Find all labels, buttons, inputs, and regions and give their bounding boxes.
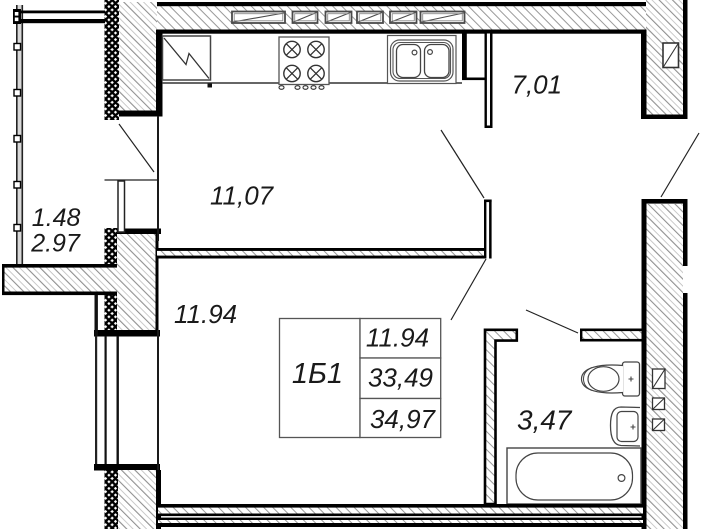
svg-text:3,47: 3,47 (517, 405, 573, 436)
svg-text:11.94: 11.94 (366, 323, 429, 353)
svg-text:7,01: 7,01 (512, 70, 563, 100)
svg-text:2.97: 2.97 (30, 230, 81, 258)
svg-text:11,07: 11,07 (210, 181, 275, 211)
svg-text:33,49: 33,49 (368, 363, 433, 393)
svg-text:34,97: 34,97 (370, 404, 437, 434)
svg-text:11.94: 11.94 (174, 299, 237, 329)
svg-text:1Б1: 1Б1 (292, 358, 343, 390)
svg-text:1.48: 1.48 (32, 204, 81, 232)
